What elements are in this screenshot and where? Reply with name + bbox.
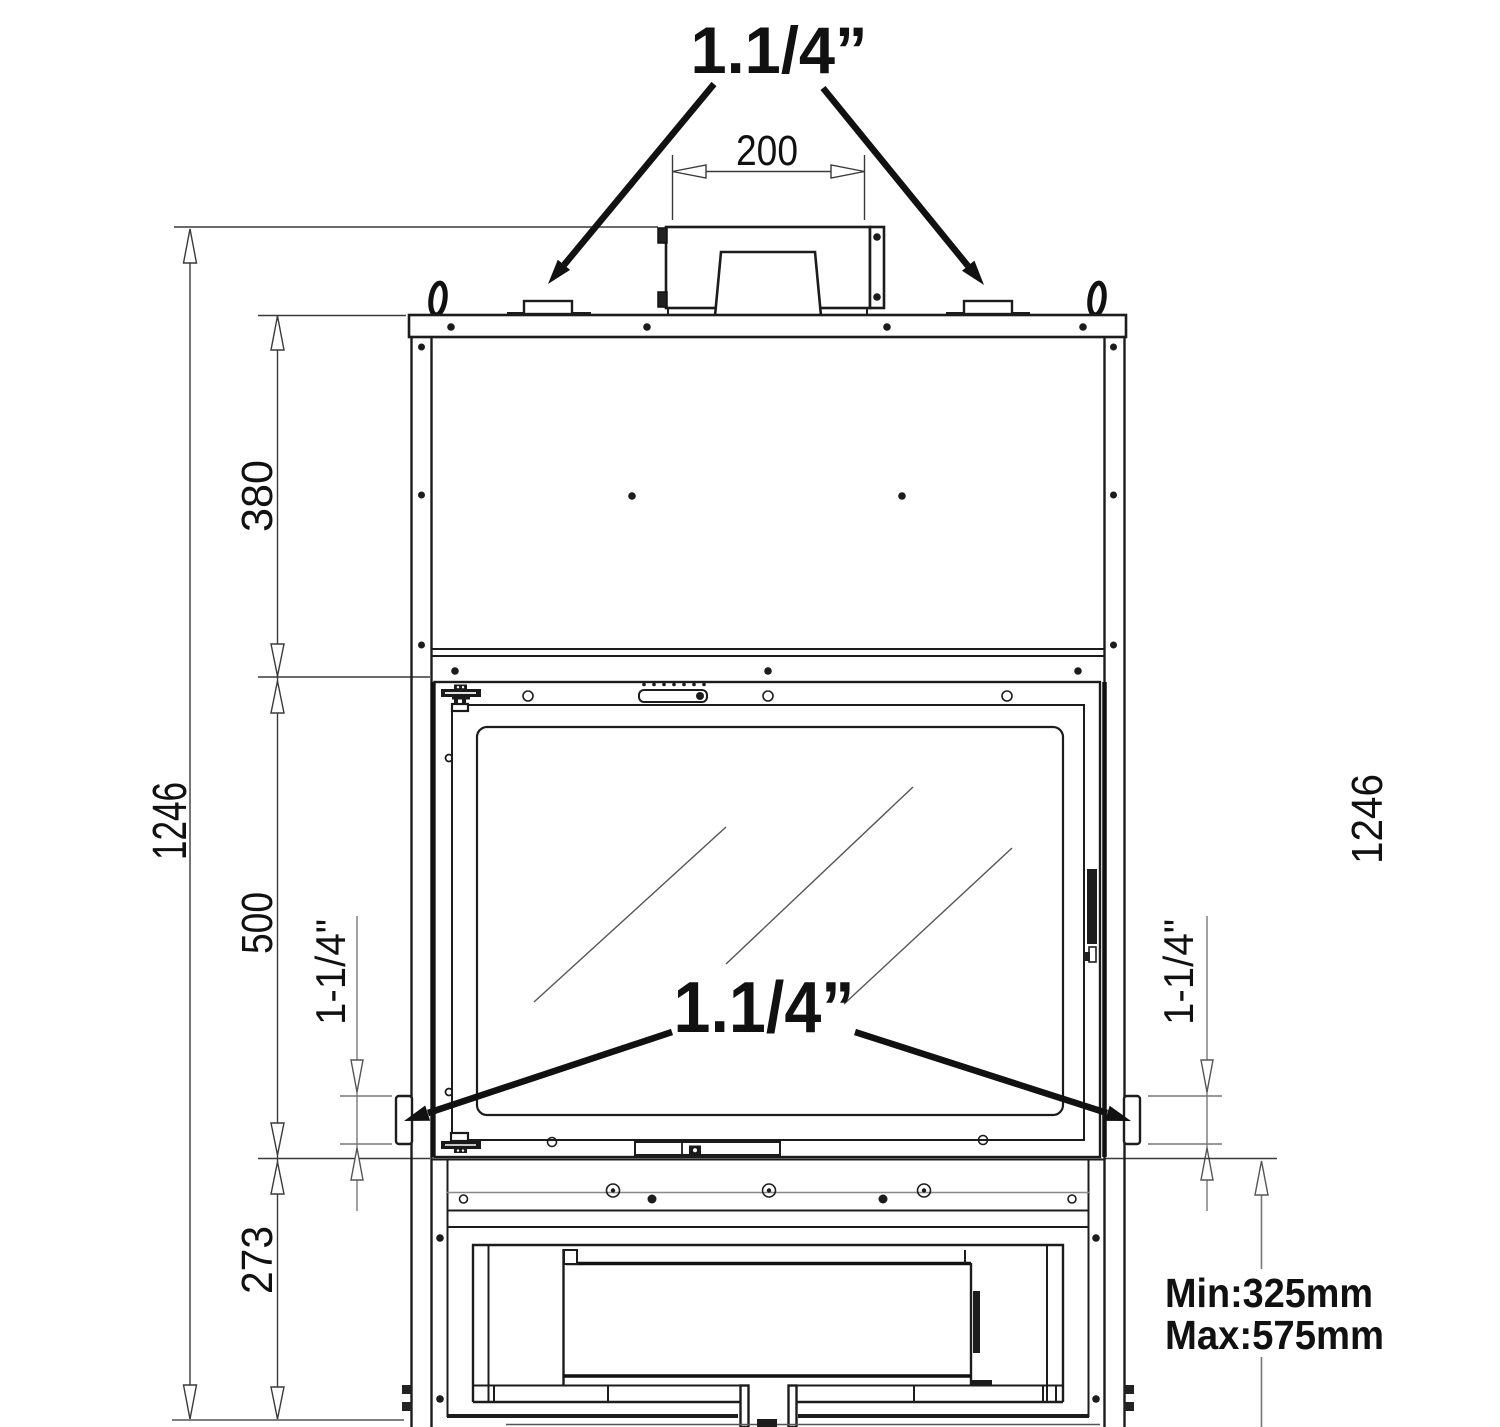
svg-text:1-1/4": 1-1/4" xyxy=(307,919,354,1025)
svg-text:1.1/4”: 1.1/4” xyxy=(691,13,868,87)
svg-text:200: 200 xyxy=(736,127,798,175)
svg-text:Min:325mm: Min:325mm xyxy=(1165,1270,1373,1316)
svg-text:1246: 1246 xyxy=(1343,774,1392,864)
svg-text:1.1/4”: 1.1/4” xyxy=(674,968,855,1048)
svg-text:Max:575mm: Max:575mm xyxy=(1165,1312,1384,1358)
svg-text:500: 500 xyxy=(233,892,282,954)
svg-text:1-1/4": 1-1/4" xyxy=(1155,919,1202,1025)
svg-text:380: 380 xyxy=(233,460,282,532)
svg-text:273: 273 xyxy=(233,1226,282,1294)
svg-text:1246: 1246 xyxy=(144,782,197,860)
